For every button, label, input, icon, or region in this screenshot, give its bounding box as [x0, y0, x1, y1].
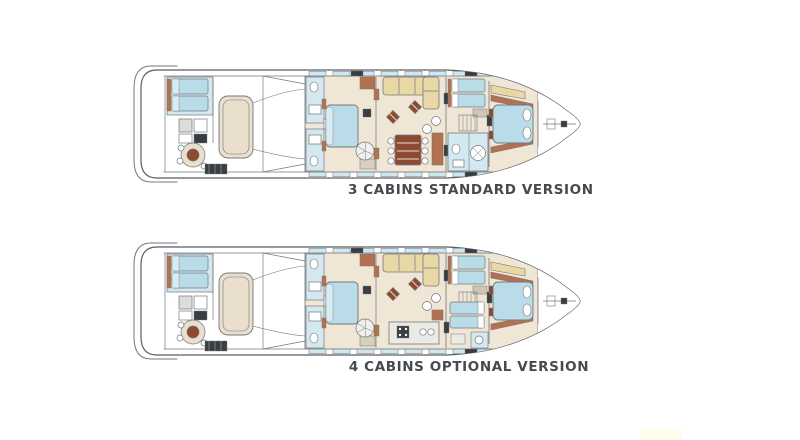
yacht-layout-drawing-optional	[131, 240, 583, 362]
forward-bathroom	[448, 133, 488, 171]
watermark-strip	[640, 429, 682, 440]
spiral-stairs	[356, 142, 374, 160]
deck-plans-sheet: 3 CABINS STANDARD VERSION 4 CABINS OPTIO…	[0, 0, 800, 440]
dining-area	[388, 133, 443, 165]
plan-label-standard: 3 CABINS STANDARD VERSION	[348, 182, 590, 198]
deck-plan-optional: 4 CABINS OPTIONAL VERSION	[131, 240, 583, 380]
yacht-layout-drawing-standard	[131, 63, 583, 185]
cockpit-settee	[219, 96, 253, 158]
spiral-stairs	[356, 319, 374, 337]
deck-plan-standard: 3 CABINS STANDARD VERSION	[131, 63, 583, 203]
cockpit-settee	[219, 273, 253, 335]
plan-label-optional: 4 CABINS OPTIONAL VERSION	[348, 359, 590, 375]
